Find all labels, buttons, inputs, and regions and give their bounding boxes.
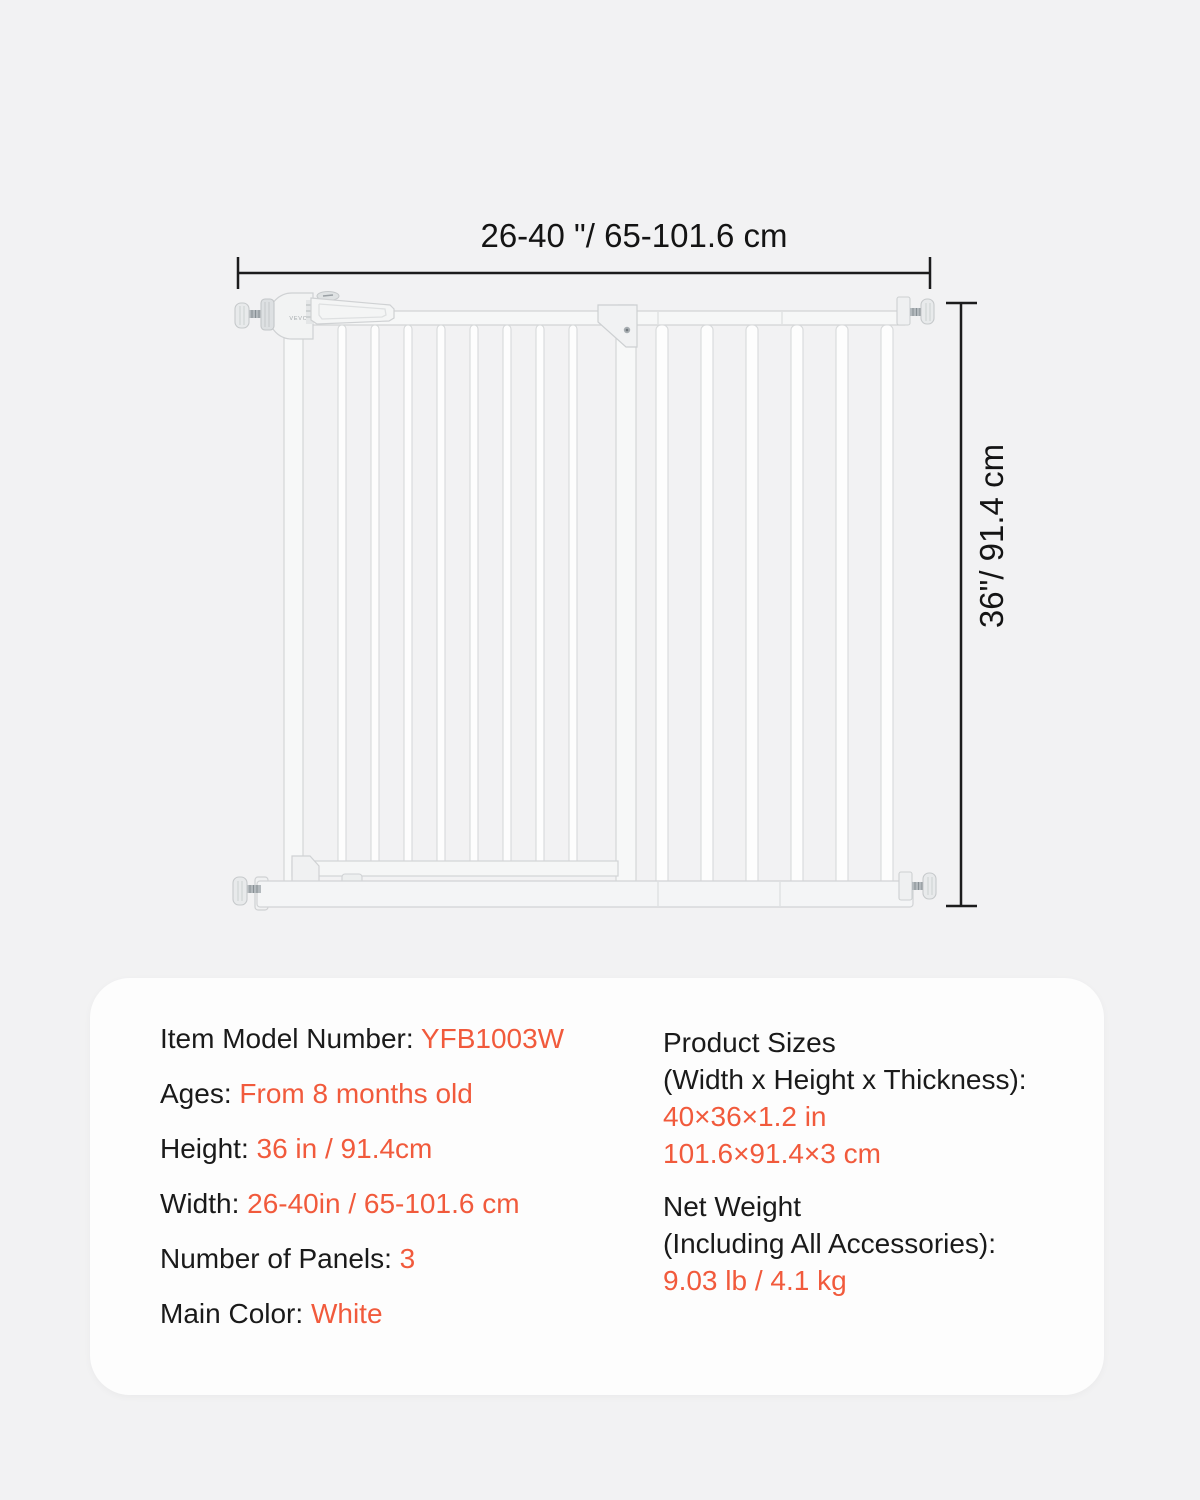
gate-door-bar <box>338 325 346 867</box>
spec-row-height: Height: 36 in / 91.4cm <box>160 1134 564 1164</box>
mount-flange <box>897 297 910 325</box>
spec-block-value: 40×36×1.2 in <box>663 1098 1027 1135</box>
spec-label: Number of Panels: <box>160 1243 392 1274</box>
gate-door-bar <box>371 325 379 867</box>
gate-extension-bars <box>656 325 893 887</box>
spec-row-ages: Ages: From 8 months old <box>160 1079 564 1109</box>
door-hinge-foot <box>292 856 319 884</box>
spec-value: 26-40in / 65-101.6 cm <box>247 1188 519 1219</box>
mount-flange <box>899 872 912 900</box>
spec-label: Width: <box>160 1188 239 1219</box>
gate-extension-bar <box>791 325 803 887</box>
spec-block-product-sizes: Product Sizes (Width x Height x Thicknes… <box>663 1024 1027 1172</box>
gate-extension-bar <box>701 325 713 887</box>
gate-extension-bar <box>656 325 668 887</box>
spec-row-color: Main Color: White <box>160 1299 564 1329</box>
gate-door-bar <box>503 325 511 867</box>
spec-row-panels: Number of Panels: 3 <box>160 1244 564 1274</box>
gate-hinge-post <box>284 316 303 882</box>
spec-value: 36 in / 91.4cm <box>257 1133 433 1164</box>
pressure-mount-top-right <box>897 297 934 325</box>
gate-illustration: VEVOR <box>0 0 1200 978</box>
gate-middle-post <box>616 305 636 882</box>
width-dimension <box>238 257 930 289</box>
spec-value: From 8 months old <box>239 1078 472 1109</box>
spec-block-net-weight: Net Weight (Including All Accessories): … <box>663 1188 1027 1299</box>
spec-row-model: Item Model Number: YFB1003W <box>160 1024 564 1054</box>
spec-label: Main Color: <box>160 1298 303 1329</box>
mount-knob-disc <box>233 877 247 905</box>
spec-block-title: Product Sizes <box>663 1024 1027 1061</box>
gate-extension-bar <box>746 325 758 887</box>
spec-value: 3 <box>400 1243 416 1274</box>
gate-door-bar <box>536 325 544 867</box>
mount-knob-disc <box>235 303 249 328</box>
pressure-mount-bottom-right <box>899 872 936 900</box>
mount-knob-disc <box>923 873 936 899</box>
spec-label: Ages: <box>160 1078 232 1109</box>
spec-label: Height: <box>160 1133 249 1164</box>
spec-block-value: 101.6×91.4×3 cm <box>663 1135 1027 1172</box>
gate-door-bar <box>404 325 412 867</box>
gate-door-bottom-bar <box>292 861 618 876</box>
mount-knob-disc <box>921 299 934 324</box>
spec-value: White <box>311 1298 383 1329</box>
gate-door-bars <box>338 325 577 867</box>
gate-door-bar <box>437 325 445 867</box>
pressure-mount-top-left <box>235 299 274 330</box>
spec-row-width: Width: 26-40in / 65-101.6 cm <box>160 1189 564 1219</box>
spec-block-value: 9.03 lb / 4.1 kg <box>663 1262 1027 1299</box>
lock-dial-slot <box>323 295 333 296</box>
spec-column-left: Item Model Number: YFB1003W Ages: From 8… <box>160 1024 564 1329</box>
gate-extension-bar <box>836 325 848 887</box>
spec-block-subtitle: (Width x Height x Thickness): <box>663 1061 1027 1098</box>
spec-column-right: Product Sizes (Width x Height x Thicknes… <box>663 1024 1027 1299</box>
spec-block-title: Net Weight <box>663 1188 1027 1225</box>
width-dimension-label: 26-40 "/ 65-101.6 cm <box>480 217 787 254</box>
latch-handle <box>311 298 394 324</box>
gate-door-bar <box>470 325 478 867</box>
spec-card: Item Model Number: YFB1003W Ages: From 8… <box>90 978 1104 1395</box>
gate-extension-bar <box>881 325 893 887</box>
connector-screw-center <box>626 329 629 332</box>
spec-label: Item Model Number: <box>160 1023 414 1054</box>
gate-bottom-rail <box>257 881 913 907</box>
mount-tension-nut <box>261 299 274 330</box>
height-dimension-label: 36"/ 91.4 cm <box>973 444 1010 628</box>
spec-block-subtitle: (Including All Accessories): <box>663 1225 1027 1262</box>
gate-door-bar <box>569 325 577 867</box>
spec-value: YFB1003W <box>421 1023 564 1054</box>
product-spec-page: VEVOR <box>0 0 1200 1500</box>
